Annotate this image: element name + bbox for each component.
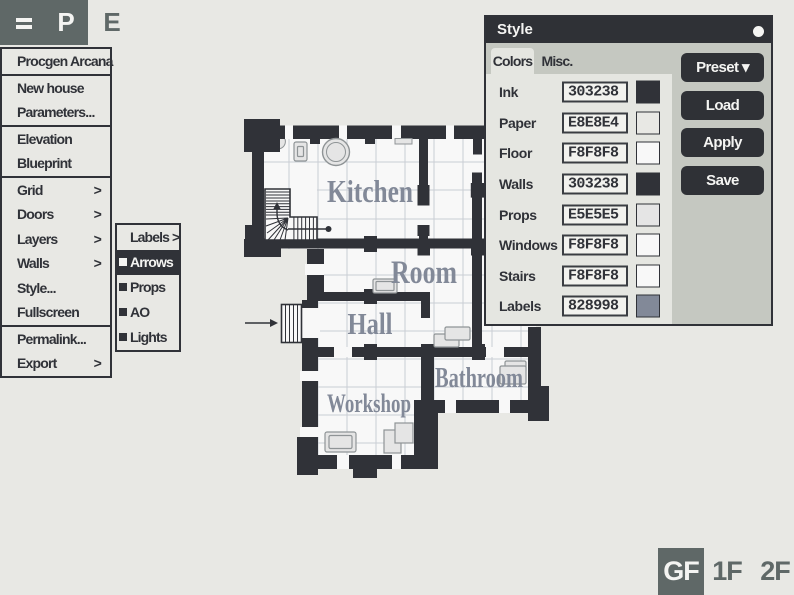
svg-text:Room: Room xyxy=(391,255,457,291)
svg-text:Hall: Hall xyxy=(348,306,393,341)
svg-text:Bathroom: Bathroom xyxy=(435,363,523,394)
svg-text:Workshop: Workshop xyxy=(327,389,411,418)
svg-text:Kitchen: Kitchen xyxy=(327,173,413,209)
